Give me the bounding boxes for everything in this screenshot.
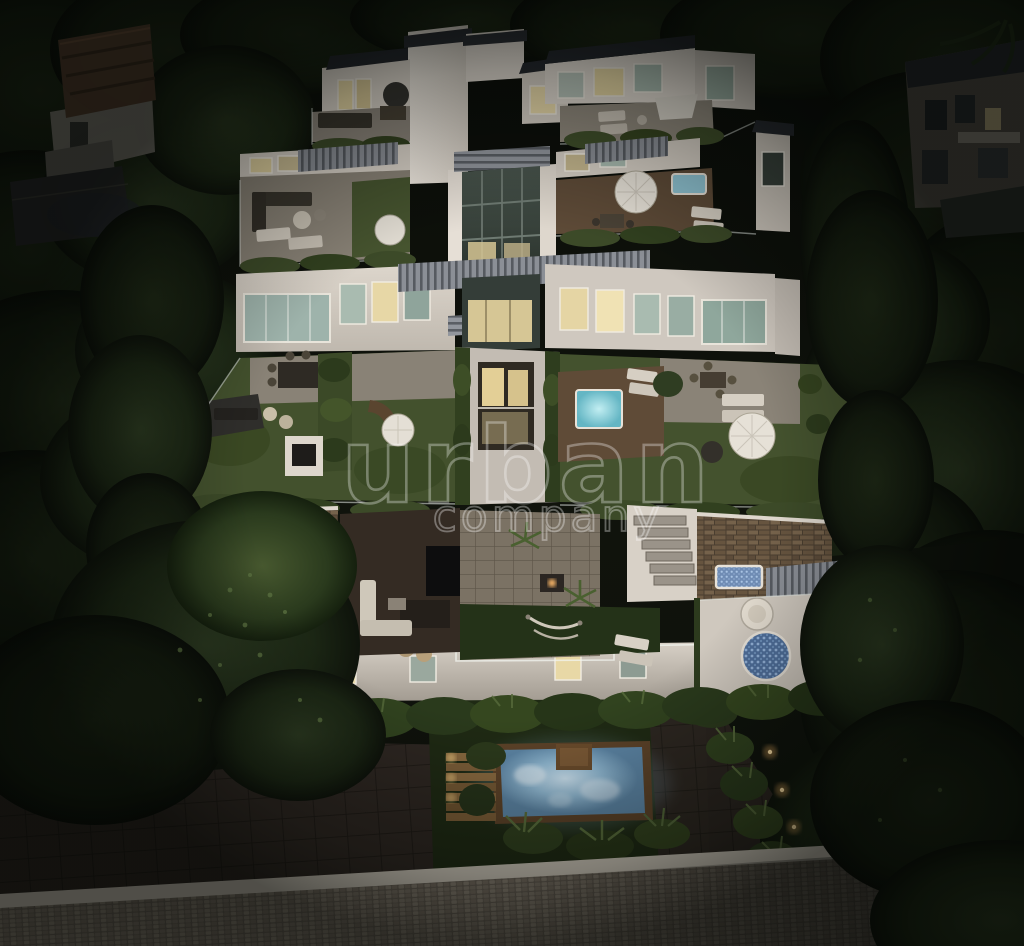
architectural-render-scene: urban company bbox=[0, 0, 1024, 946]
watermark: urban company bbox=[341, 405, 715, 542]
watermark-line2: company bbox=[433, 491, 664, 542]
render-canvas: urban company bbox=[0, 0, 1024, 946]
